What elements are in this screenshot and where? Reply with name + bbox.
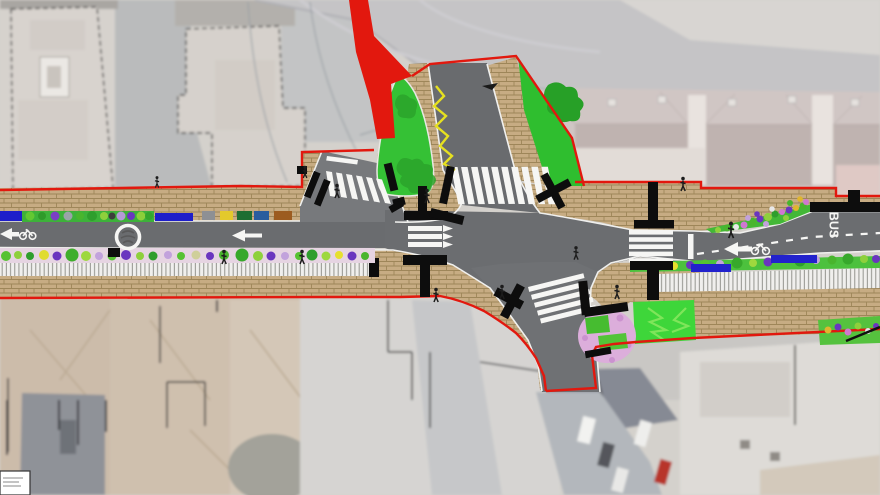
- svg-text:BUS: BUS: [827, 212, 841, 238]
